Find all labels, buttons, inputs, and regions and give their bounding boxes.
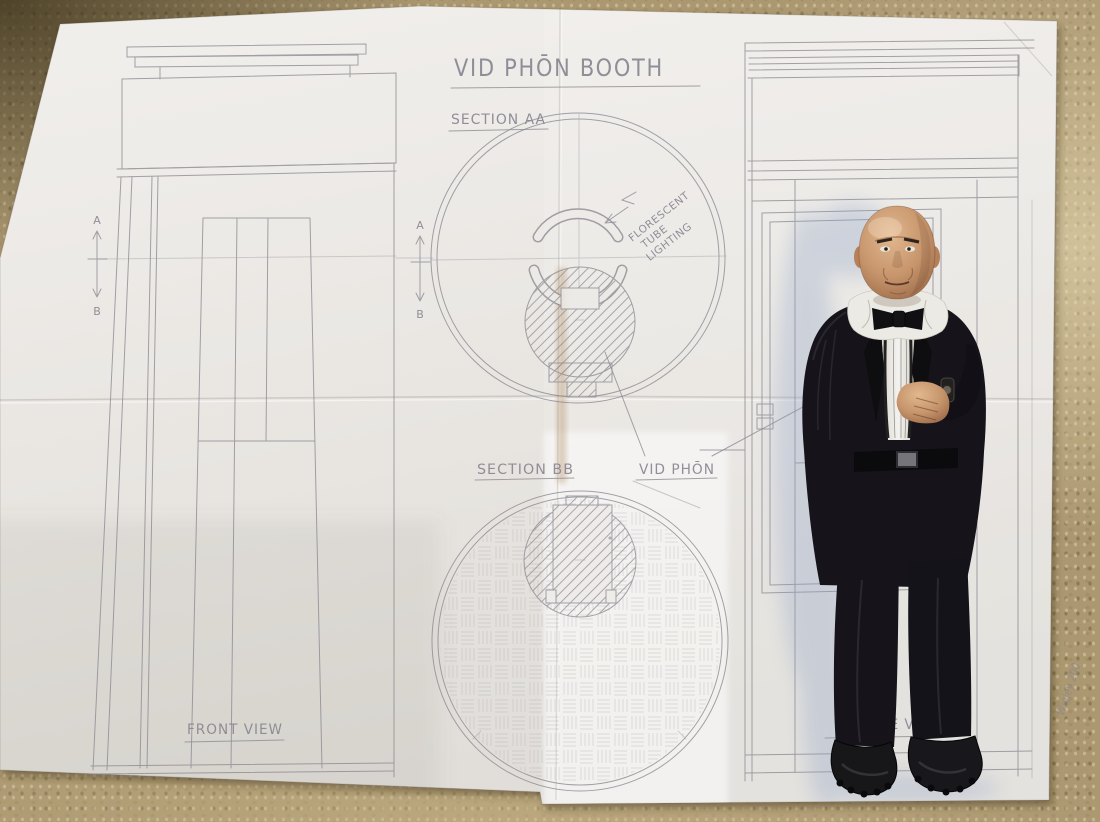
section-bb-label: SECTION BB	[477, 462, 574, 478]
skull-highlight	[868, 217, 902, 239]
belt-buckle	[897, 452, 917, 467]
signature-text: Wigley 200	[1054, 661, 1084, 717]
page-title: VID PHŌN BOOTH	[454, 53, 664, 82]
vid-phon-label: VID PHŌN	[639, 461, 715, 478]
bow-tie	[872, 308, 924, 330]
left-trouser-leg	[834, 560, 899, 747]
marker-a-mid: A	[416, 219, 424, 232]
right-pupil	[907, 247, 911, 251]
front-view-label: FRONT VIEW	[187, 722, 283, 738]
marker-a-left: A	[93, 214, 101, 227]
blueprint-photo: A B A B VID PHŌN BOOTH SECTION AA	[0, 0, 1100, 822]
marker-b-mid: B	[416, 308, 424, 321]
left-pupil	[884, 247, 888, 251]
bottom-left-shading	[0, 520, 440, 810]
signature: Wigley 200	[1054, 661, 1084, 717]
marker-b-left: B	[93, 305, 101, 318]
blueprint-photo-scene: A B A B VID PHŌN BOOTH SECTION AA	[0, 0, 1100, 822]
